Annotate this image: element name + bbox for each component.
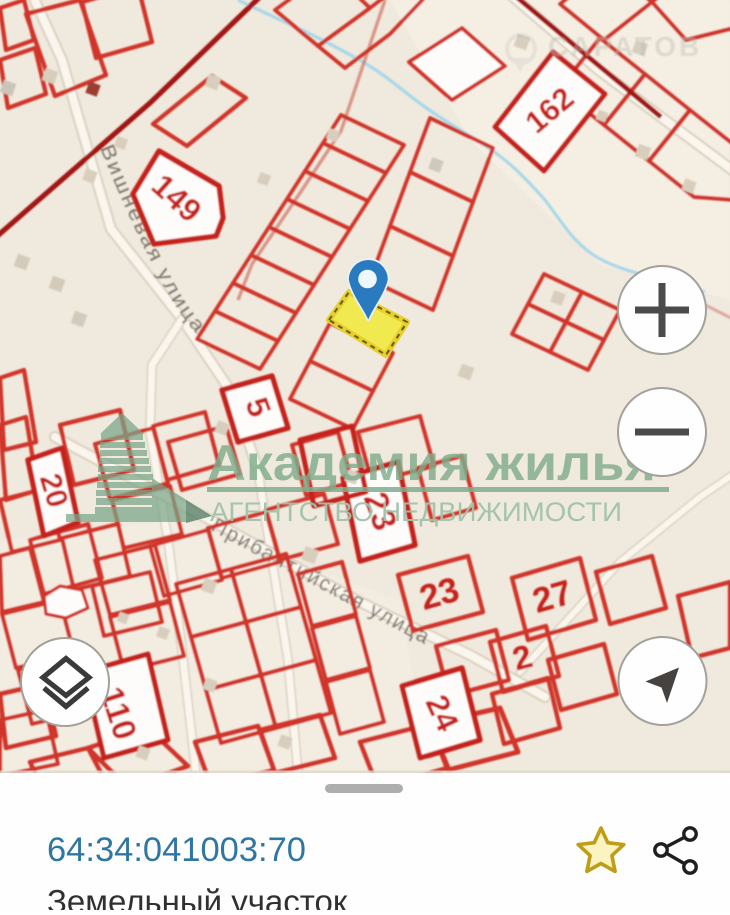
svg-text:САРАТОВ: САРАТОВ (548, 31, 702, 62)
svg-text:АГЕНТСТВО НЕДВИЖИМОСТИ: АГЕНТСТВО НЕДВИЖИМОСТИ (210, 497, 622, 527)
svg-text:Академия жилья: Академия жилья (207, 435, 656, 491)
svg-text:64:34:041003:70: 64:34:041003:70 (47, 831, 306, 869)
svg-text:Земельный участок: Земельный участок (47, 883, 348, 910)
